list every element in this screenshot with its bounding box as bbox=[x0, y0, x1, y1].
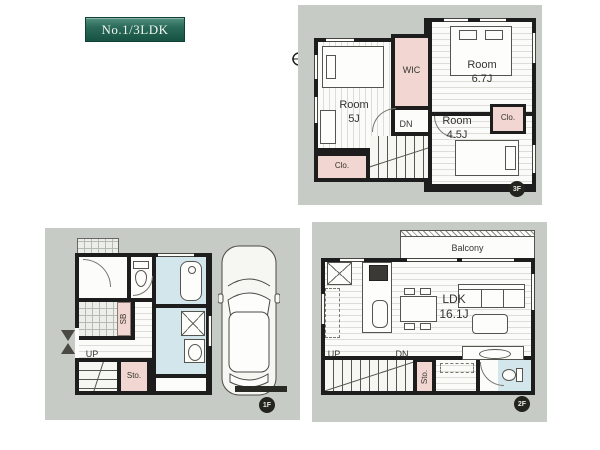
window bbox=[532, 33, 536, 63]
floor-tag-text: 2F bbox=[518, 401, 526, 408]
storage-label: Sto. bbox=[420, 363, 430, 391]
bath-drain bbox=[188, 266, 196, 274]
pillow bbox=[485, 30, 503, 40]
chair bbox=[404, 323, 415, 330]
storage-label: Sto. bbox=[121, 371, 147, 381]
tv bbox=[479, 349, 511, 359]
floor-tag-text: 1F bbox=[263, 402, 271, 409]
floor-plan-2f: Balcony bbox=[312, 222, 547, 422]
toilet-tank bbox=[133, 261, 149, 269]
window bbox=[340, 258, 364, 262]
entrance-door-mark-icon bbox=[61, 330, 75, 341]
floor-plan-3f: Room 5J WIC Room 6.7J Room 4.5J Clo. Clo… bbox=[298, 5, 542, 205]
floor-tag-2f: 2F bbox=[514, 396, 530, 412]
floor-tag-1f: 1F bbox=[259, 397, 275, 413]
stove bbox=[369, 265, 388, 281]
stairs-line bbox=[325, 360, 413, 391]
stairs-up-label: UP bbox=[323, 349, 345, 360]
window bbox=[314, 97, 318, 123]
tv-board bbox=[462, 346, 524, 360]
window bbox=[532, 145, 536, 173]
closet-label: Clo. bbox=[318, 161, 366, 171]
single-bed bbox=[322, 46, 384, 88]
window bbox=[480, 18, 506, 22]
stairs-line bbox=[370, 145, 428, 169]
kitchen-sink bbox=[372, 300, 388, 328]
entrance-opening bbox=[75, 328, 79, 358]
room-label-wic: WIC bbox=[395, 65, 428, 76]
refrigerator-space bbox=[325, 288, 340, 338]
parking-line bbox=[235, 386, 287, 392]
single-bed bbox=[455, 140, 519, 176]
window bbox=[314, 55, 318, 79]
rear-corridor bbox=[156, 378, 206, 391]
washing-machine-pan bbox=[327, 262, 352, 285]
floor-plan-1f: UP Sto. SB 1F bbox=[45, 228, 300, 420]
window bbox=[321, 294, 325, 324]
chair bbox=[404, 288, 415, 295]
washing-machine-pan bbox=[181, 311, 205, 336]
chair bbox=[420, 323, 431, 330]
closet-label: Clo. bbox=[490, 113, 526, 123]
shoe-box-label: SB bbox=[119, 308, 129, 330]
floor-tag-text: 3F bbox=[513, 186, 521, 193]
window bbox=[208, 316, 212, 346]
toilet-tank bbox=[516, 368, 523, 382]
window bbox=[158, 253, 194, 257]
plan-title: No.1/3LDK bbox=[102, 22, 169, 38]
window bbox=[326, 38, 354, 42]
pillow bbox=[459, 30, 477, 40]
entrance-door-mark-icon bbox=[61, 343, 75, 354]
linen-space bbox=[440, 363, 474, 373]
bathtub bbox=[180, 261, 202, 301]
stairs-down-label: DN bbox=[390, 119, 422, 130]
room-label-6-7j: Room 6.7J bbox=[450, 59, 514, 87]
hallway bbox=[135, 302, 152, 340]
car bbox=[218, 242, 280, 399]
stairs-up-label: UP bbox=[80, 349, 104, 360]
pillow bbox=[326, 55, 336, 79]
window bbox=[462, 258, 514, 262]
stairs bbox=[370, 136, 428, 178]
washbasin bbox=[188, 344, 202, 361]
plan-title-badge: No.1/3LDK bbox=[85, 17, 185, 42]
toilet bbox=[502, 369, 516, 381]
genkan-tile bbox=[79, 302, 117, 336]
room-label-5j: Room 5J bbox=[322, 99, 386, 127]
window bbox=[531, 274, 535, 310]
stairs bbox=[325, 360, 413, 391]
room-label-4-5j: Room 4.5J bbox=[428, 115, 486, 143]
floor-tag-3f: 3F bbox=[509, 181, 525, 197]
stairs bbox=[79, 362, 117, 391]
pillow bbox=[505, 146, 516, 170]
balcony-label: Balcony bbox=[451, 243, 483, 253]
stairs-line bbox=[92, 362, 105, 391]
sofa-seam bbox=[503, 290, 504, 307]
window bbox=[407, 258, 457, 262]
room-label-ldk: LDK 16.1J bbox=[424, 292, 484, 322]
sofa-back bbox=[459, 285, 524, 290]
floor-plan-sheet: No.1/3LDK N bbox=[0, 0, 600, 450]
window bbox=[444, 18, 468, 22]
balcony-railing bbox=[401, 231, 534, 237]
stairs-down-label: DN bbox=[390, 349, 414, 360]
washbasin-counter bbox=[184, 339, 205, 363]
